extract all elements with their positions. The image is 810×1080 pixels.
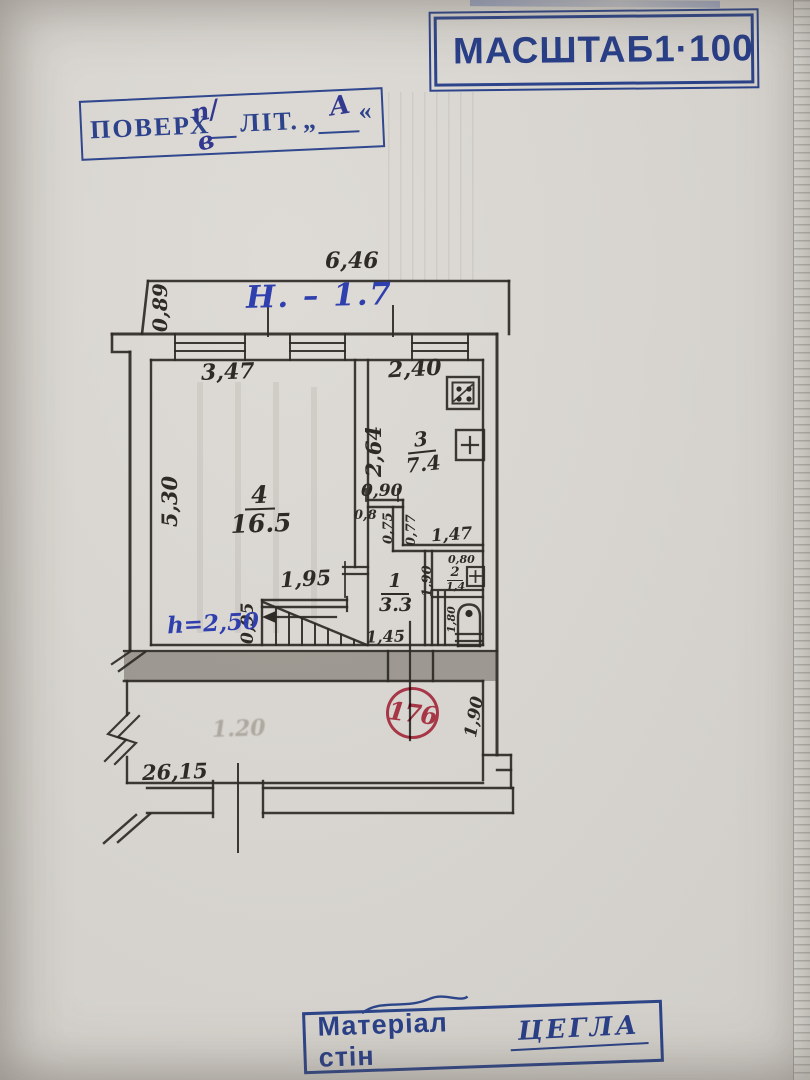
letter-blank: А (317, 104, 359, 134)
handwriting-flourish (360, 993, 471, 1017)
dim-room4-width: 3,47 (201, 360, 255, 384)
dim-vestibule-left: 0,8 (354, 509, 377, 522)
scale-stamp-label: МАСШТАБ (453, 28, 655, 72)
room-number: 1 (381, 572, 408, 595)
room-label-4: 4 16.5 (229, 479, 291, 540)
material-value-handwritten: ЦЕГЛА (509, 1010, 649, 1051)
stair-height-note: h=2,50 (166, 610, 259, 638)
room-area: 7.4 (403, 451, 443, 478)
registry-number: 176 (386, 696, 438, 731)
dim-wc-height: 1,90 (421, 565, 434, 597)
dim-toilet-depth: 1,80 (446, 606, 457, 633)
dim-hall-width: 1,47 (430, 526, 472, 546)
dim-top-offset: 0,89 (150, 283, 170, 332)
dim-vestibule-inner-right: 0,77 (405, 514, 418, 546)
toilet-icon (456, 605, 482, 647)
room-label-3: 3 7.4 (401, 425, 444, 478)
dim-top-width: 6,46 (325, 250, 379, 272)
room-number: 4 (244, 481, 276, 510)
letter-handwritten: А (327, 90, 352, 123)
room-area: 1,4 (446, 581, 464, 594)
dim-stair-opening: 1,95 (279, 567, 331, 591)
scanned-floor-plan-page: 6,46 0,89 Н. – 1.7 3,47 2,40 5,30 2,64 3… (0, 0, 810, 1080)
quote-open: „ (302, 105, 318, 136)
room-label-2: 2 1,4 (446, 565, 464, 593)
floor-value-handwritten: п/в (189, 91, 242, 157)
sink-plus-icon (456, 430, 484, 460)
room-number: 2 (447, 566, 462, 581)
material-stamp-label: Матеріал стін (317, 1005, 499, 1073)
scale-stamp-value: 1·100 (654, 27, 754, 70)
wall-break-icon (105, 713, 139, 764)
sink-plus-icon (467, 567, 484, 586)
dim-room4-height: 5,30 (159, 476, 180, 527)
dim-hall-opening: 1,45 (366, 628, 406, 645)
floor-stamp-lit-label: ЛІТ. (239, 106, 299, 139)
dim-wc-width: 0,80 (448, 554, 475, 565)
dim-room3-height: 2,64 (363, 426, 384, 477)
gas-stove-icon (447, 377, 479, 409)
level-note: Н. – 1.7 (246, 279, 394, 314)
dim-vestibule-opening: 0,90 (361, 483, 402, 500)
room-area: 16.5 (230, 509, 291, 540)
room-area: 3.3 (379, 595, 411, 617)
quote-close: « (358, 96, 374, 127)
dim-corridor-length: 26,15 (142, 760, 208, 783)
dim-vestibule-inner-left: 0,75 (382, 512, 395, 544)
room-label-1: 1 3.3 (379, 570, 411, 617)
floor-value-blank: п/в (210, 110, 237, 139)
material-stamp: Матеріал стін ЦЕГЛА (302, 1000, 664, 1075)
scale-stamp: МАСШТАБ 1·100 (429, 8, 760, 91)
door-opening (147, 781, 513, 817)
scale-stamp-frame: МАСШТАБ 1·100 (434, 13, 755, 86)
bleed-text: 1.20 (212, 717, 266, 741)
dim-room3-width: 2,40 (387, 357, 442, 382)
